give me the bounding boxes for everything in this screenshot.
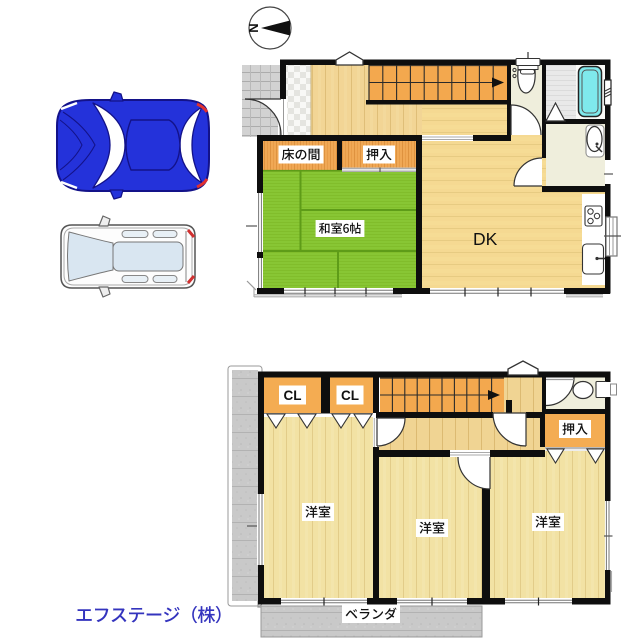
svg-text:CL: CL [341,388,359,403]
svg-text:CL: CL [284,388,302,403]
svg-text:N: N [246,23,261,32]
svg-text:DK: DK [473,229,498,249]
